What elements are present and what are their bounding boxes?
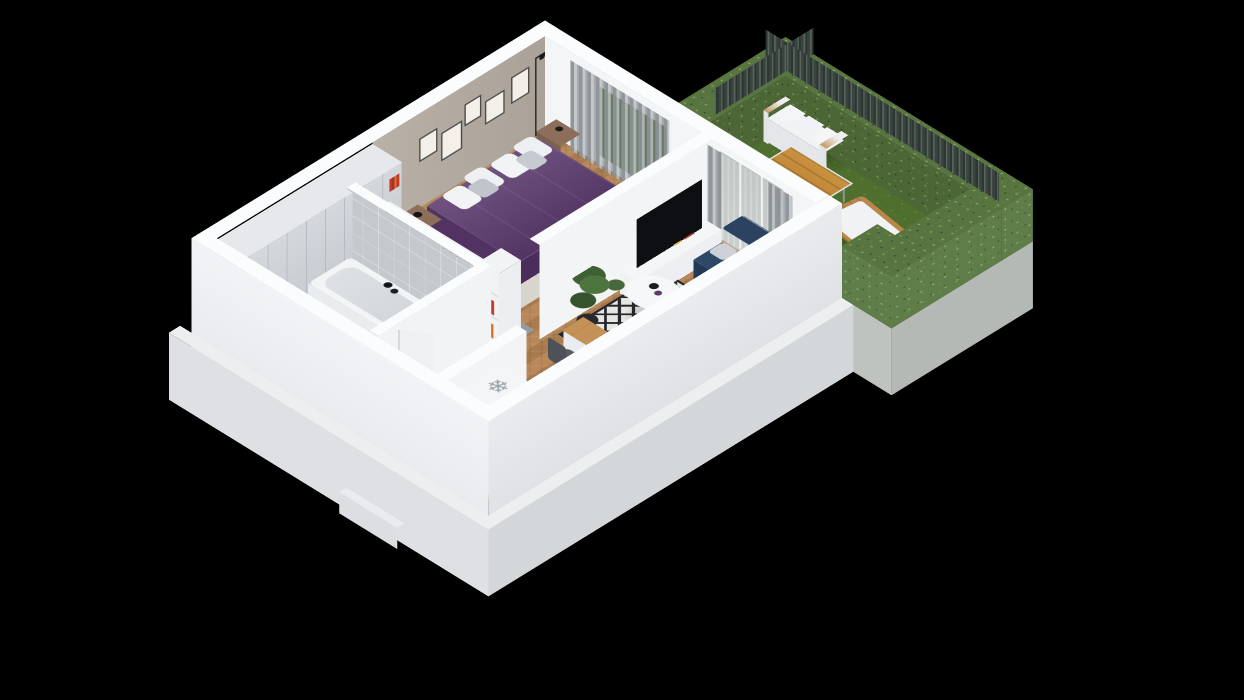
floor-lamp-shade xyxy=(539,52,545,61)
framed-picture xyxy=(464,94,481,127)
framed-picture xyxy=(419,127,437,162)
red-books xyxy=(389,173,399,192)
render-canvas: ❄ xyxy=(0,0,1244,700)
floor-lamp-pole xyxy=(535,59,536,137)
framed-picture xyxy=(511,66,529,104)
framed-picture xyxy=(441,120,462,161)
framed-picture xyxy=(485,89,505,125)
